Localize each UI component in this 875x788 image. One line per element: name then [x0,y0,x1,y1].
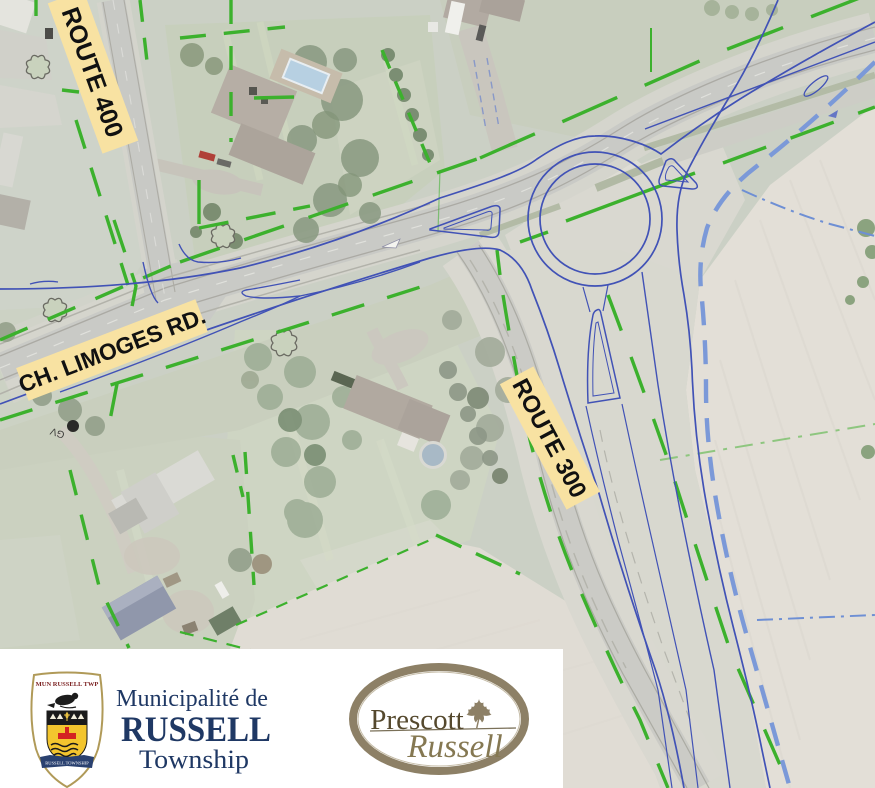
svg-text:RUSSELL TOWNSHIP: RUSSELL TOWNSHIP [45,761,89,766]
svg-text:Township: Township [139,745,249,774]
svg-text:MUN RUSSELL TWP: MUN RUSSELL TWP [36,681,99,688]
svg-text:Russell: Russell [406,729,502,765]
svg-text:RUSSELL: RUSSELL [121,709,271,749]
